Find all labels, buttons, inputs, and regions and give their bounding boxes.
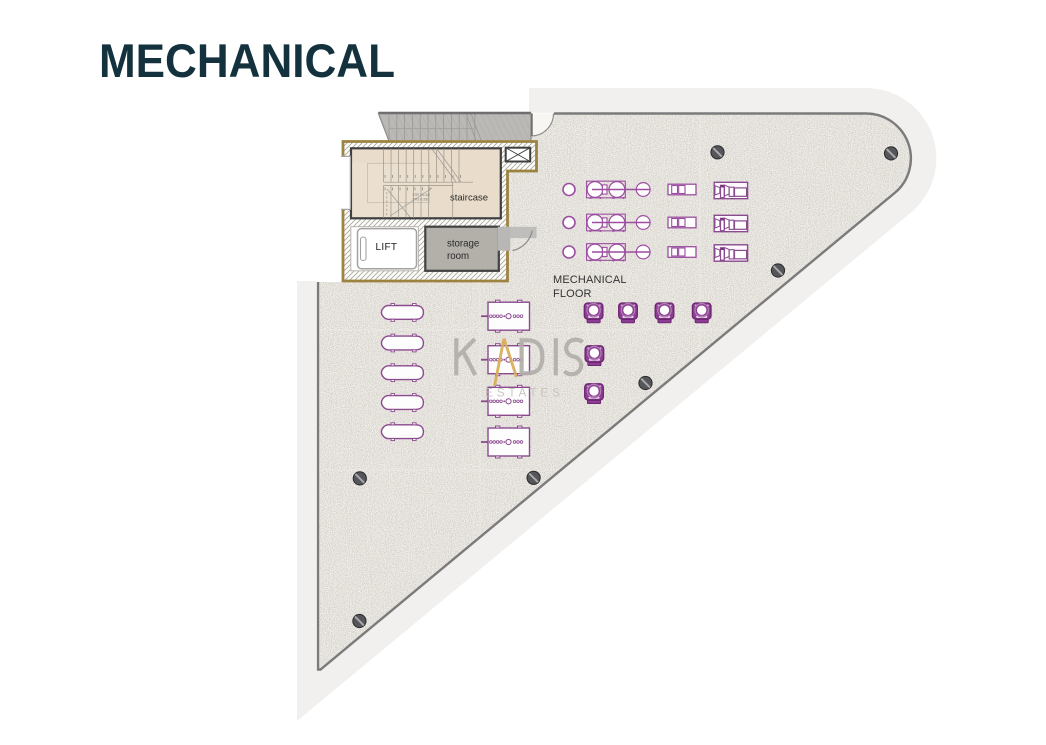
svg-text:MECHANICAL: MECHANICAL bbox=[553, 274, 627, 286]
svg-text:ESTATES: ESTATES bbox=[485, 387, 564, 400]
svg-text:17R +0.18: 17R +0.18 bbox=[412, 193, 430, 197]
svg-text:staircase: staircase bbox=[450, 193, 488, 204]
svg-text:room: room bbox=[447, 251, 469, 262]
svg-text:MECHANICAL: MECHANICAL bbox=[99, 35, 395, 88]
svg-text:17G 0.28: 17G 0.28 bbox=[412, 198, 428, 202]
svg-text:LIFT: LIFT bbox=[376, 242, 398, 253]
svg-text:storage: storage bbox=[447, 239, 479, 250]
svg-text:FLOOR: FLOOR bbox=[553, 288, 592, 300]
